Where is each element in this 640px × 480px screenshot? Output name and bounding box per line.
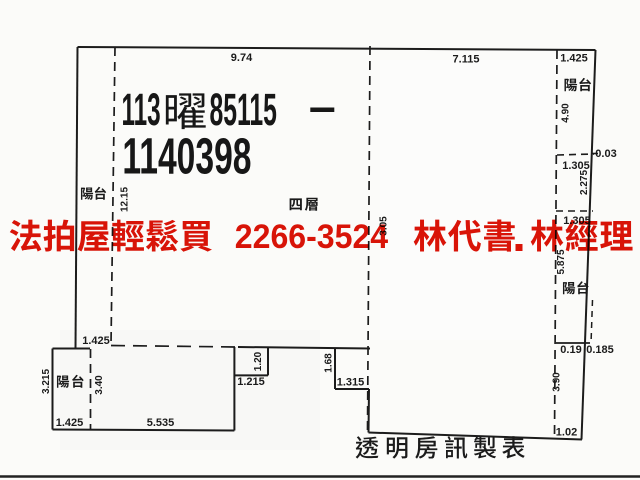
svg-text:2266-3524: 2266-3524 <box>235 218 389 256</box>
svg-text:0.03: 0.03 <box>595 148 616 160</box>
svg-text:1.425: 1.425 <box>56 417 84 429</box>
svg-text:1.425: 1.425 <box>560 53 588 65</box>
svg-text:7.115: 7.115 <box>453 54 480 66</box>
svg-text:2.275: 2.275 <box>579 170 590 195</box>
svg-text:1.20: 1.20 <box>253 351 264 371</box>
svg-text:5.875: 5.875 <box>556 249 567 274</box>
svg-text:1.425: 1.425 <box>82 335 110 347</box>
svg-text:1.305: 1.305 <box>563 215 591 227</box>
svg-text:1140398: 1140398 <box>122 128 251 185</box>
svg-text:1.215: 1.215 <box>237 376 265 388</box>
svg-text:0.19: 0.19 <box>560 344 581 356</box>
svg-text:4.90: 4.90 <box>561 103 572 123</box>
svg-text:3.90: 3.90 <box>552 372 563 392</box>
svg-text:12.15: 12.15 <box>120 187 131 212</box>
svg-text:0.185: 0.185 <box>586 344 614 356</box>
svg-text:1.315: 1.315 <box>337 377 365 389</box>
svg-text:9.74: 9.74 <box>231 52 253 64</box>
svg-text:3.215: 3.215 <box>41 369 52 394</box>
svg-text:3.40: 3.40 <box>94 375 105 395</box>
svg-text:5.535: 5.535 <box>147 417 175 429</box>
svg-text:1.02: 1.02 <box>556 427 577 439</box>
svg-text:1.68: 1.68 <box>324 353 335 373</box>
